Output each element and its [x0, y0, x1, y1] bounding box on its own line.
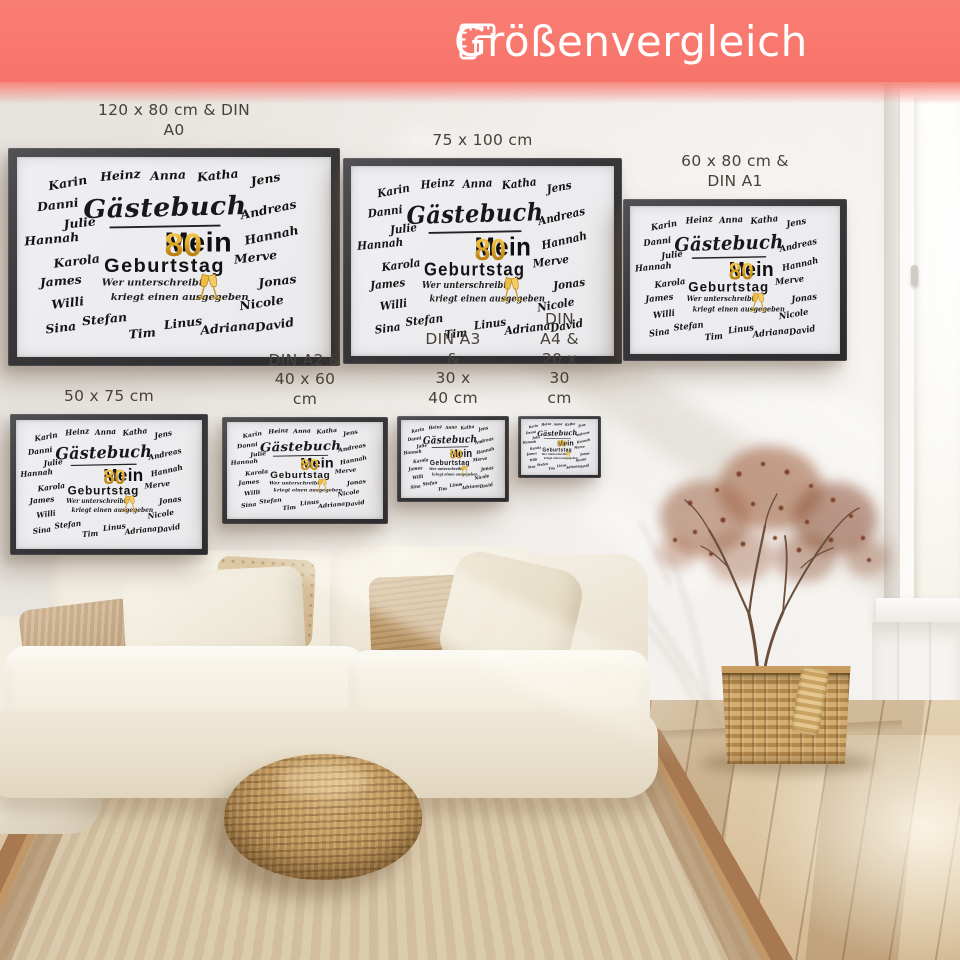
guest-name: Tim [128, 325, 156, 341]
poster-art: GästebuchMein80GeburtstagWer unterschrei… [227, 422, 383, 519]
guest-name: Danni [27, 445, 53, 457]
guest-name: Jonas [159, 494, 183, 506]
poster-tagline: Wer unterschreibtkriegt einen ausgegeben [422, 279, 507, 293]
poster-frame: GästebuchMein80GeburtstagWer unterschrei… [623, 199, 847, 361]
guest-name: Adriana [124, 523, 157, 536]
poster-tagline: Wer unterschreibtkriegt einen ausgegeben [429, 466, 463, 472]
guest-name: Karola [37, 481, 65, 494]
guest-name: Heinz [268, 426, 289, 435]
guest-name: James [238, 478, 259, 487]
guest-name: Katha [501, 174, 537, 191]
guest-name: Jens [249, 169, 281, 188]
poster-size-label: DIN A4 & 20 x 30 cm [539, 310, 581, 409]
guest-name: Andreas [337, 441, 366, 453]
guest-name: Hannah [230, 457, 258, 466]
guest-name: Jens [578, 422, 586, 427]
guest-name: Hannah [634, 260, 671, 274]
guest-name: Karola [413, 457, 429, 465]
guest-name: Danni [643, 234, 672, 248]
guest-name: Adriana [566, 464, 580, 470]
poster-title: Gästebuch [55, 442, 152, 464]
poster-120x80-din-a0: 120 x 80 cm & DIN A0 GästebuchMein80Gebu… [8, 148, 340, 366]
poster-title: Gästebuch [423, 433, 477, 446]
guest-name: Andreas [474, 435, 493, 445]
poster-size-label: DIN A2 & 40 x 60 cm [264, 351, 347, 410]
poster-artwork: GästebuchMein80GeburtstagWer unterschrei… [630, 206, 840, 354]
poster-tagline: Wer unterschreibtkriegt einen ausgegeben [269, 480, 320, 487]
guest-name: Andreas [575, 430, 589, 437]
poster-size-label: 60 x 80 cm & DIN A1 [679, 152, 791, 192]
guest-name: Anna [553, 422, 562, 426]
guest-name: Danni [36, 195, 79, 214]
guest-name: Anna [462, 175, 493, 190]
guest-name: Stefan [82, 310, 128, 329]
guest-name: David [788, 323, 816, 338]
guest-name: Andreas [147, 445, 182, 461]
poster-din-a2-40x60: DIN A2 & 40 x 60 cm GästebuchMein80Gebur… [222, 417, 388, 524]
guest-name: Adriana [752, 325, 789, 340]
guest-name: Willi [379, 296, 408, 313]
poster-size-label: 75 x 100 cm [432, 131, 532, 151]
poster-size-label: DIN A3 & 30 x 40 cm [425, 330, 481, 409]
guest-name: Jens [545, 178, 572, 196]
poster-artwork: GästebuchMein80GeburtstagWer unterschrei… [17, 157, 331, 357]
guest-name: James [645, 291, 674, 304]
guest-name: Heinz [100, 166, 142, 184]
guest-name: David [479, 482, 493, 490]
guest-name: Anna [445, 424, 457, 430]
guest-name: Danni [367, 203, 403, 221]
woven-basket [716, 666, 856, 764]
guest-name: Jonas [580, 451, 590, 456]
guest-name: Merve [233, 247, 278, 266]
guest-name: David [156, 522, 180, 535]
guest-name: Heinz [420, 175, 455, 192]
poster-60x80-din-a1: 60 x 80 cm & DIN A1 GästebuchMein80Gebur… [623, 199, 847, 361]
guest-name: Karola [530, 445, 542, 450]
guest-name: Hannah [243, 223, 300, 248]
guest-name: Hannah [150, 462, 184, 478]
guest-name: Sina [528, 464, 536, 469]
guest-name: Danni [237, 441, 258, 450]
poster-art: GästebuchMein80GeburtstagWer unterschrei… [16, 420, 202, 549]
poster-title: Gästebuch [82, 191, 246, 225]
guest-name: Stefan [54, 518, 81, 530]
guest-name: Tim [705, 330, 724, 342]
guest-name: Linus [163, 314, 203, 333]
champagne-glasses-icon [497, 275, 525, 309]
poster-artwork: GästebuchMein80GeburtstagWer unterschrei… [521, 419, 598, 475]
poster-frame: GästebuchMein80GeburtstagWer unterschrei… [222, 417, 388, 524]
guest-name: Katha [316, 426, 337, 435]
guest-name: Heinz [685, 213, 713, 226]
poster-frame: GästebuchMein80GeburtstagWer unterschrei… [397, 416, 509, 502]
window-glow [896, 78, 960, 634]
guest-name: Willi [412, 473, 423, 480]
poster-title: Gästebuch [406, 198, 544, 230]
guest-name: Jens [153, 428, 172, 440]
guest-name: Tim [82, 528, 99, 539]
guest-name: Anna [719, 213, 743, 225]
guest-name: Jonas [553, 275, 586, 293]
guest-name: Adriana [199, 317, 255, 337]
guest-name: Jens [785, 215, 806, 229]
guest-name: David [254, 315, 295, 335]
guest-name: Katha [750, 213, 779, 227]
guest-name: James [370, 275, 406, 292]
guest-name: Hannah [576, 437, 590, 444]
banner-title: Größenvergleich [454, 17, 808, 66]
guest-name: Hannah [24, 230, 80, 249]
guest-name: Merve [574, 444, 585, 449]
guest-name: Nicole [337, 488, 360, 498]
poster-size-label: 50 x 75 cm [64, 387, 154, 407]
guest-name: Katha [460, 423, 474, 430]
guest-name: Karola [245, 468, 269, 478]
guest-name: David [345, 499, 366, 509]
poster-art: GästebuchMein80GeburtstagWer unterschrei… [521, 419, 598, 475]
poster-frame: GästebuchMein80GeburtstagWer unterschrei… [10, 414, 208, 555]
poster-art: GästebuchMein80GeburtstagWer unterschrei… [630, 206, 840, 354]
guest-name: Jonas [347, 478, 367, 487]
guest-name: Sina [649, 325, 671, 338]
guest-name: Karin [411, 426, 425, 434]
poster-artwork: GästebuchMein80GeburtstagWer unterschrei… [16, 420, 202, 549]
guest-name: Willi [243, 488, 260, 497]
guest-name: Jens [342, 428, 358, 437]
poster-tagline-line2: kriegt einen ausgegeben [429, 293, 544, 307]
guest-name: Nicole [575, 457, 586, 463]
guest-name: Karin [376, 181, 410, 201]
guest-name: Hannah [476, 446, 495, 456]
guest-name: Julie [63, 214, 97, 231]
poster-artwork: GästebuchMein80GeburtstagWer unterschrei… [401, 420, 505, 498]
guest-name: Hannah [403, 448, 422, 455]
poster-art: GästebuchMein80GeburtstagWer unterschrei… [401, 420, 505, 498]
guest-name: Karin [47, 173, 88, 194]
guest-name: Sina [32, 524, 51, 535]
poster-artwork: GästebuchMein80GeburtstagWer unterschrei… [227, 422, 383, 519]
guest-name: Karola [53, 251, 101, 271]
guest-name: Tim [438, 485, 447, 491]
guest-name: James [408, 465, 422, 472]
guest-name: Sina [241, 500, 257, 509]
guest-name: Karin [528, 423, 538, 429]
guest-name: Stefan [673, 319, 704, 333]
champagne-glasses-icon [314, 478, 331, 496]
champagne-glasses-icon [120, 494, 140, 517]
poster-tagline: Wer unterschreibtkriegt einen ausgegeben [687, 294, 755, 305]
poster-tagline-line2: kriegt einen ausgegeben [544, 456, 578, 460]
guest-name: Stefan [259, 496, 282, 505]
poster-title: Gästebuch [260, 439, 342, 455]
champagne-glasses-icon [564, 451, 572, 461]
guest-name: Heinz [541, 422, 551, 427]
window-handle [911, 265, 918, 286]
guest-name: Karin [34, 430, 58, 443]
dried-plant [635, 408, 900, 703]
poster-frame: GästebuchMein80GeburtstagWer unterschrei… [518, 416, 601, 478]
champagne-glasses-icon [459, 465, 470, 479]
guest-name: James [526, 451, 537, 456]
champagne-glasses-icon [192, 272, 226, 308]
poster-title: Gästebuch [537, 429, 577, 438]
guest-name: Heinz [65, 426, 90, 437]
poster-tagline-line2: kriegt einen ausgegeben [274, 487, 342, 494]
size-comparison-scene: 120 x 80 cm & DIN A0 GästebuchMein80Gebu… [0, 0, 960, 960]
guest-name: Stefan [422, 480, 437, 487]
guest-name: Jonas [258, 272, 298, 291]
guest-name: Katha [122, 426, 147, 438]
poster-50x75: 50 x 75 cm GästebuchMein80GeburtstagWer … [10, 414, 208, 555]
guest-name: Anna [149, 167, 185, 183]
guest-name: Jonas [481, 465, 494, 472]
guest-name: Heinz [428, 424, 442, 431]
guest-name: Willi [652, 307, 675, 320]
guest-name: Tim [282, 503, 296, 511]
guest-name: Anna [293, 427, 311, 435]
guest-name: Sina [45, 318, 77, 336]
guest-name: James [39, 272, 82, 290]
guest-name: Andreas [537, 203, 586, 227]
size-comparison-banner: Größenvergleich [0, 0, 960, 82]
guest-name: Hannah [523, 439, 537, 444]
poster-din-a3-30x40: DIN A3 & 30 x 40 cm GästebuchMein80Gebur… [397, 416, 509, 502]
guest-name: Hannah [339, 454, 367, 466]
guest-name: Andreas [778, 235, 817, 254]
guest-name: Sina [410, 483, 421, 490]
guest-name: Merve [532, 252, 570, 270]
guest-name: Adriana [318, 500, 346, 510]
guest-name: Danni [526, 430, 537, 435]
guest-name: Karin [242, 430, 262, 440]
guest-name: Jonas [791, 291, 818, 305]
guest-name: Merve [144, 478, 171, 490]
guest-name: Linus [728, 322, 755, 336]
guest-name: Willi [50, 294, 84, 312]
guest-name: Merve [334, 466, 356, 475]
guest-name: Merve [473, 455, 488, 463]
poster-size-label: 120 x 80 cm & DIN A0 [91, 101, 257, 141]
guest-name: Karola [381, 255, 421, 274]
guest-name: Katha [565, 421, 576, 426]
poster-art: GästebuchMein80GeburtstagWer unterschrei… [17, 157, 331, 357]
guest-name: Nicole [474, 473, 489, 481]
guest-name: Stefan [405, 311, 444, 329]
guest-name: Danni [407, 435, 421, 442]
poster-tagline-line2: kriegt einen ausgegeben [72, 506, 154, 515]
guest-name: Willi [529, 457, 537, 462]
poster-din-a4-20x30: DIN A4 & 20 x 30 cm GästebuchMein80Gebur… [518, 416, 601, 478]
guest-name: Sina [374, 319, 401, 336]
guest-name: Hannah [20, 467, 53, 479]
champagne-glasses-icon [747, 291, 770, 318]
guest-name: David [579, 463, 589, 469]
guest-name: Hannah [356, 235, 403, 253]
guest-name: Karin [650, 218, 678, 233]
guest-name: Adriana [461, 482, 480, 490]
guest-name: Willi [36, 508, 56, 520]
guest-name: James [29, 494, 55, 505]
guest-name: Hannah [781, 254, 819, 272]
guest-name: Linus [300, 498, 320, 507]
poster-frame: GästebuchMein80GeburtstagWer unterschrei… [8, 148, 340, 366]
rattan-pouf [224, 754, 422, 880]
guest-name: Katha [196, 166, 239, 184]
poster-tagline-line2: kriegt einen ausgegeben [111, 290, 249, 304]
guest-name: Tim [548, 466, 555, 471]
guest-name: Stefan [537, 462, 548, 467]
poster-title: Gästebuch [674, 231, 784, 256]
poster-tagline-line2: kriegt einen ausgegeben [432, 472, 478, 478]
guest-name: Hannah [540, 228, 588, 252]
poster-tagline-line2: kriegt einen ausgegeben [693, 305, 785, 316]
guest-name: Merve [775, 273, 805, 287]
guest-name: Julie [390, 220, 418, 237]
guest-name: Linus [103, 521, 127, 533]
poster-tagline: Wer unterschreibtkriegt einen ausgegeben [66, 497, 126, 506]
guest-name: Andreas [239, 196, 298, 221]
guest-name: Jens [478, 425, 489, 432]
poster-tagline: Wer unterschreibtkriegt einen ausgegeben [102, 276, 204, 290]
guest-name: Anna [94, 426, 116, 436]
guest-name: Karola [654, 276, 686, 291]
